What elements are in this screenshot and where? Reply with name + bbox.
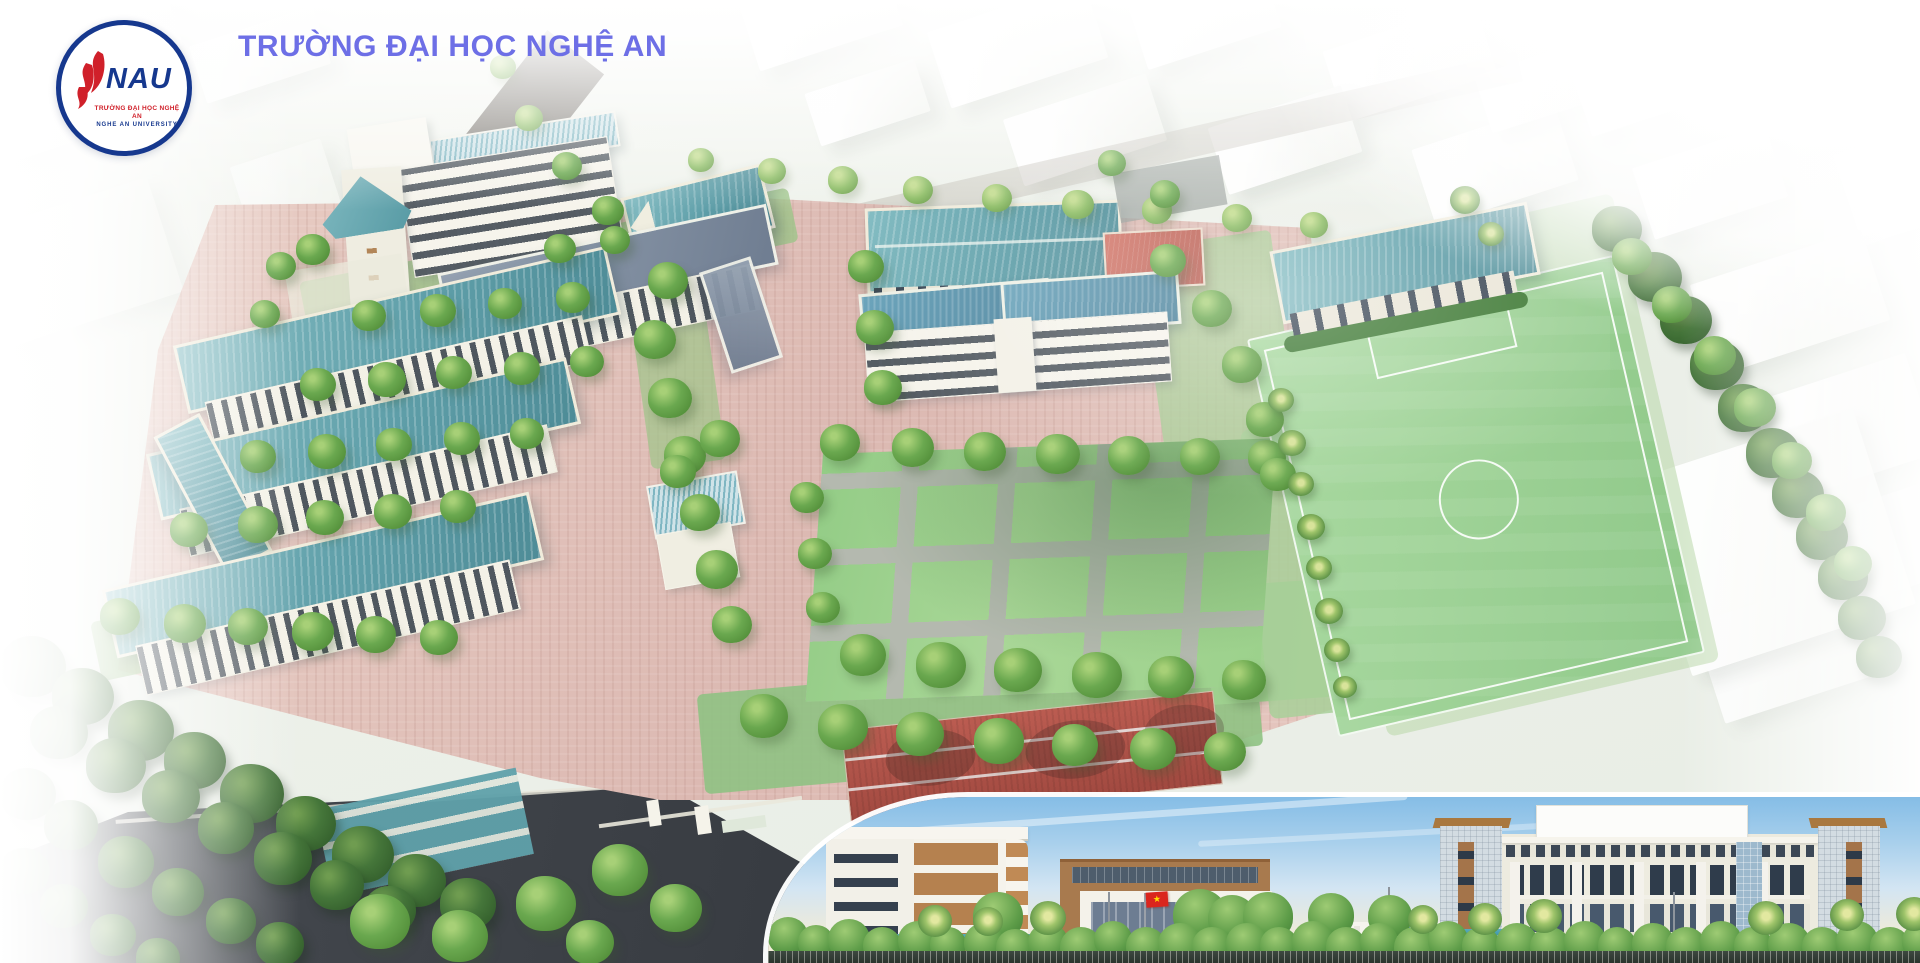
vietnam-flag-icon: ★ [1146,891,1169,907]
tree [1204,732,1246,771]
palm-tree [1896,897,1920,931]
tree [374,494,412,529]
logo-text-lines: TRƯỜNG ĐẠI HỌC NGHỆ AN NGHE AN UNIVERSIT… [89,105,185,130]
tree [648,262,688,299]
tree [740,694,788,738]
tree [306,500,344,535]
tree [696,550,738,589]
palm-tree [1324,638,1350,662]
tree [356,616,396,653]
tree [1072,652,1122,698]
palm-tree [973,907,1003,936]
tree [650,884,702,932]
site-title: TRƯỜNG ĐẠI HỌC NGHỆ AN [238,30,667,64]
tree [510,418,544,449]
gate-planter [721,815,766,833]
tree [1148,656,1194,698]
tree [504,352,540,385]
tree [712,606,752,643]
tree [1222,660,1266,700]
palm-tree [1830,899,1864,931]
tree [840,634,886,676]
tree [352,300,386,331]
tree [896,712,944,756]
tree [798,538,832,569]
glass-strip [1072,867,1258,883]
university-banner: ★ TRƯỜNG ĐẠI HỌC KINH TẾ NGHỆ AN [0,0,1920,963]
tree [432,910,488,962]
tree [350,894,410,949]
palm-tree [1526,899,1562,933]
tree [308,434,346,469]
tree [420,620,458,655]
tree [488,288,522,319]
tree [570,346,604,377]
tree [296,234,330,265]
palm-tree [918,905,952,937]
tree [660,455,696,488]
pilaster [1696,862,1706,934]
roof-slab-line [1502,837,1818,843]
logo-flame-icon [74,49,110,109]
palm-tree [1468,903,1502,935]
tree [440,490,476,523]
billboard-panel [1536,805,1748,839]
tree [300,368,336,401]
clerestory-windows [1506,845,1814,857]
tree [818,704,868,750]
tree [1130,728,1176,770]
tree [368,362,406,397]
tree [916,642,966,688]
tree [600,226,630,254]
tree [974,718,1024,764]
tree [994,648,1042,692]
palm-tree [1748,901,1784,935]
tree [806,592,840,623]
logo-line-vietnamese: TRƯỜNG ĐẠI HỌC NGHỆ AN [89,105,185,121]
fence [768,951,1920,963]
tree [376,428,412,461]
tree [680,494,720,531]
palm-tree [1408,905,1438,934]
logo-line-english: NGHE AN UNIVERSITY [89,122,185,130]
tree [420,294,456,327]
tree [634,320,676,359]
tree [444,422,480,455]
tree [700,420,740,457]
flag-star: ★ [1146,891,1169,907]
tree [436,356,472,389]
tree [566,920,614,963]
pilaster [1634,862,1644,934]
university-logo[interactable]: NAU TRƯỜNG ĐẠI HỌC NGHỆ AN NGHE AN UNIVE… [56,20,192,156]
tree [556,282,590,313]
palm-tree [1333,676,1357,698]
tree [790,482,824,513]
tree [592,844,648,896]
tree [1052,724,1098,766]
campus-elevation-render: ★ TRƯỜNG ĐẠI HỌC KINH TẾ NGHỆ AN [768,797,1920,963]
palm-tree [1315,598,1343,624]
logo-abbr: NAU [106,63,172,96]
tree [516,876,576,931]
tree [544,234,576,263]
tree [648,378,692,418]
palm-tree [1030,901,1066,935]
